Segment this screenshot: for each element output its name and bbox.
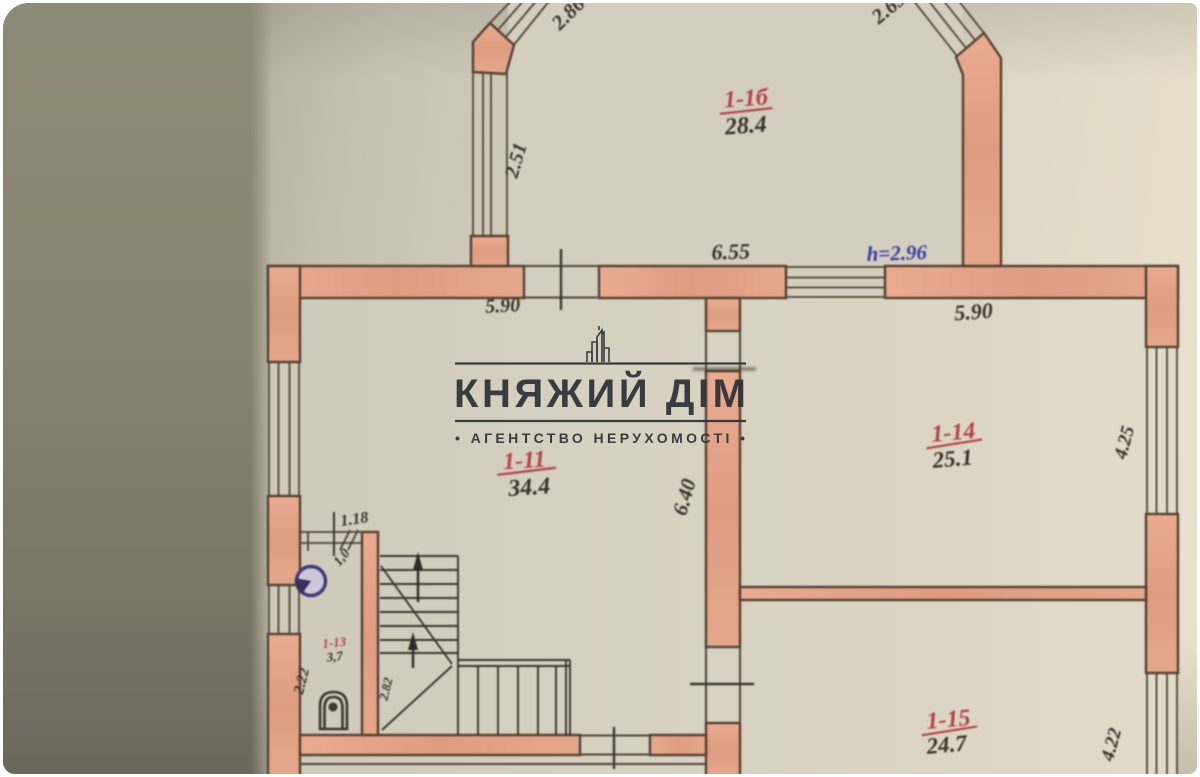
svg-text:• АГЕНТСТВО НЕРУХОМОСТІ •: • АГЕНТСТВО НЕРУХОМОСТІ • [455, 430, 745, 446]
svg-text:КНЯЖИЙ ДІМ: КНЯЖИЙ ДІМ [454, 370, 746, 416]
